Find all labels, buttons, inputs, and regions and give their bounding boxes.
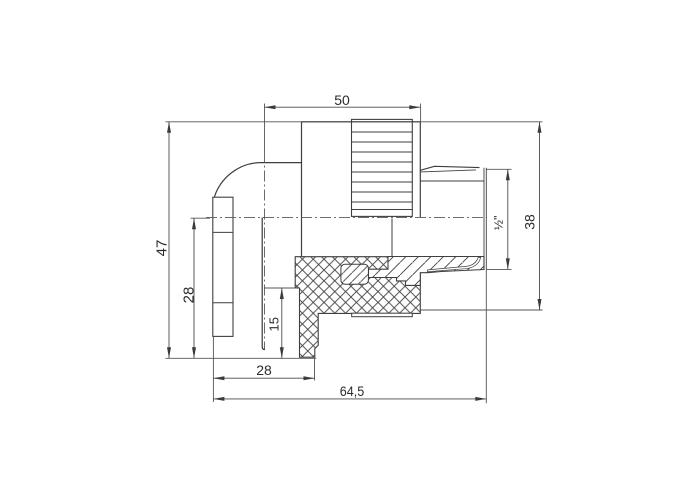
svg-text:64,5: 64,5 <box>340 383 365 399</box>
svg-text:28: 28 <box>181 287 198 304</box>
svg-text:38: 38 <box>522 214 538 230</box>
svg-text:28: 28 <box>256 362 272 378</box>
svg-text:47: 47 <box>153 240 170 257</box>
svg-text:½": ½" <box>491 216 505 230</box>
svg-text:15: 15 <box>267 317 282 331</box>
svg-text:50: 50 <box>334 92 350 108</box>
